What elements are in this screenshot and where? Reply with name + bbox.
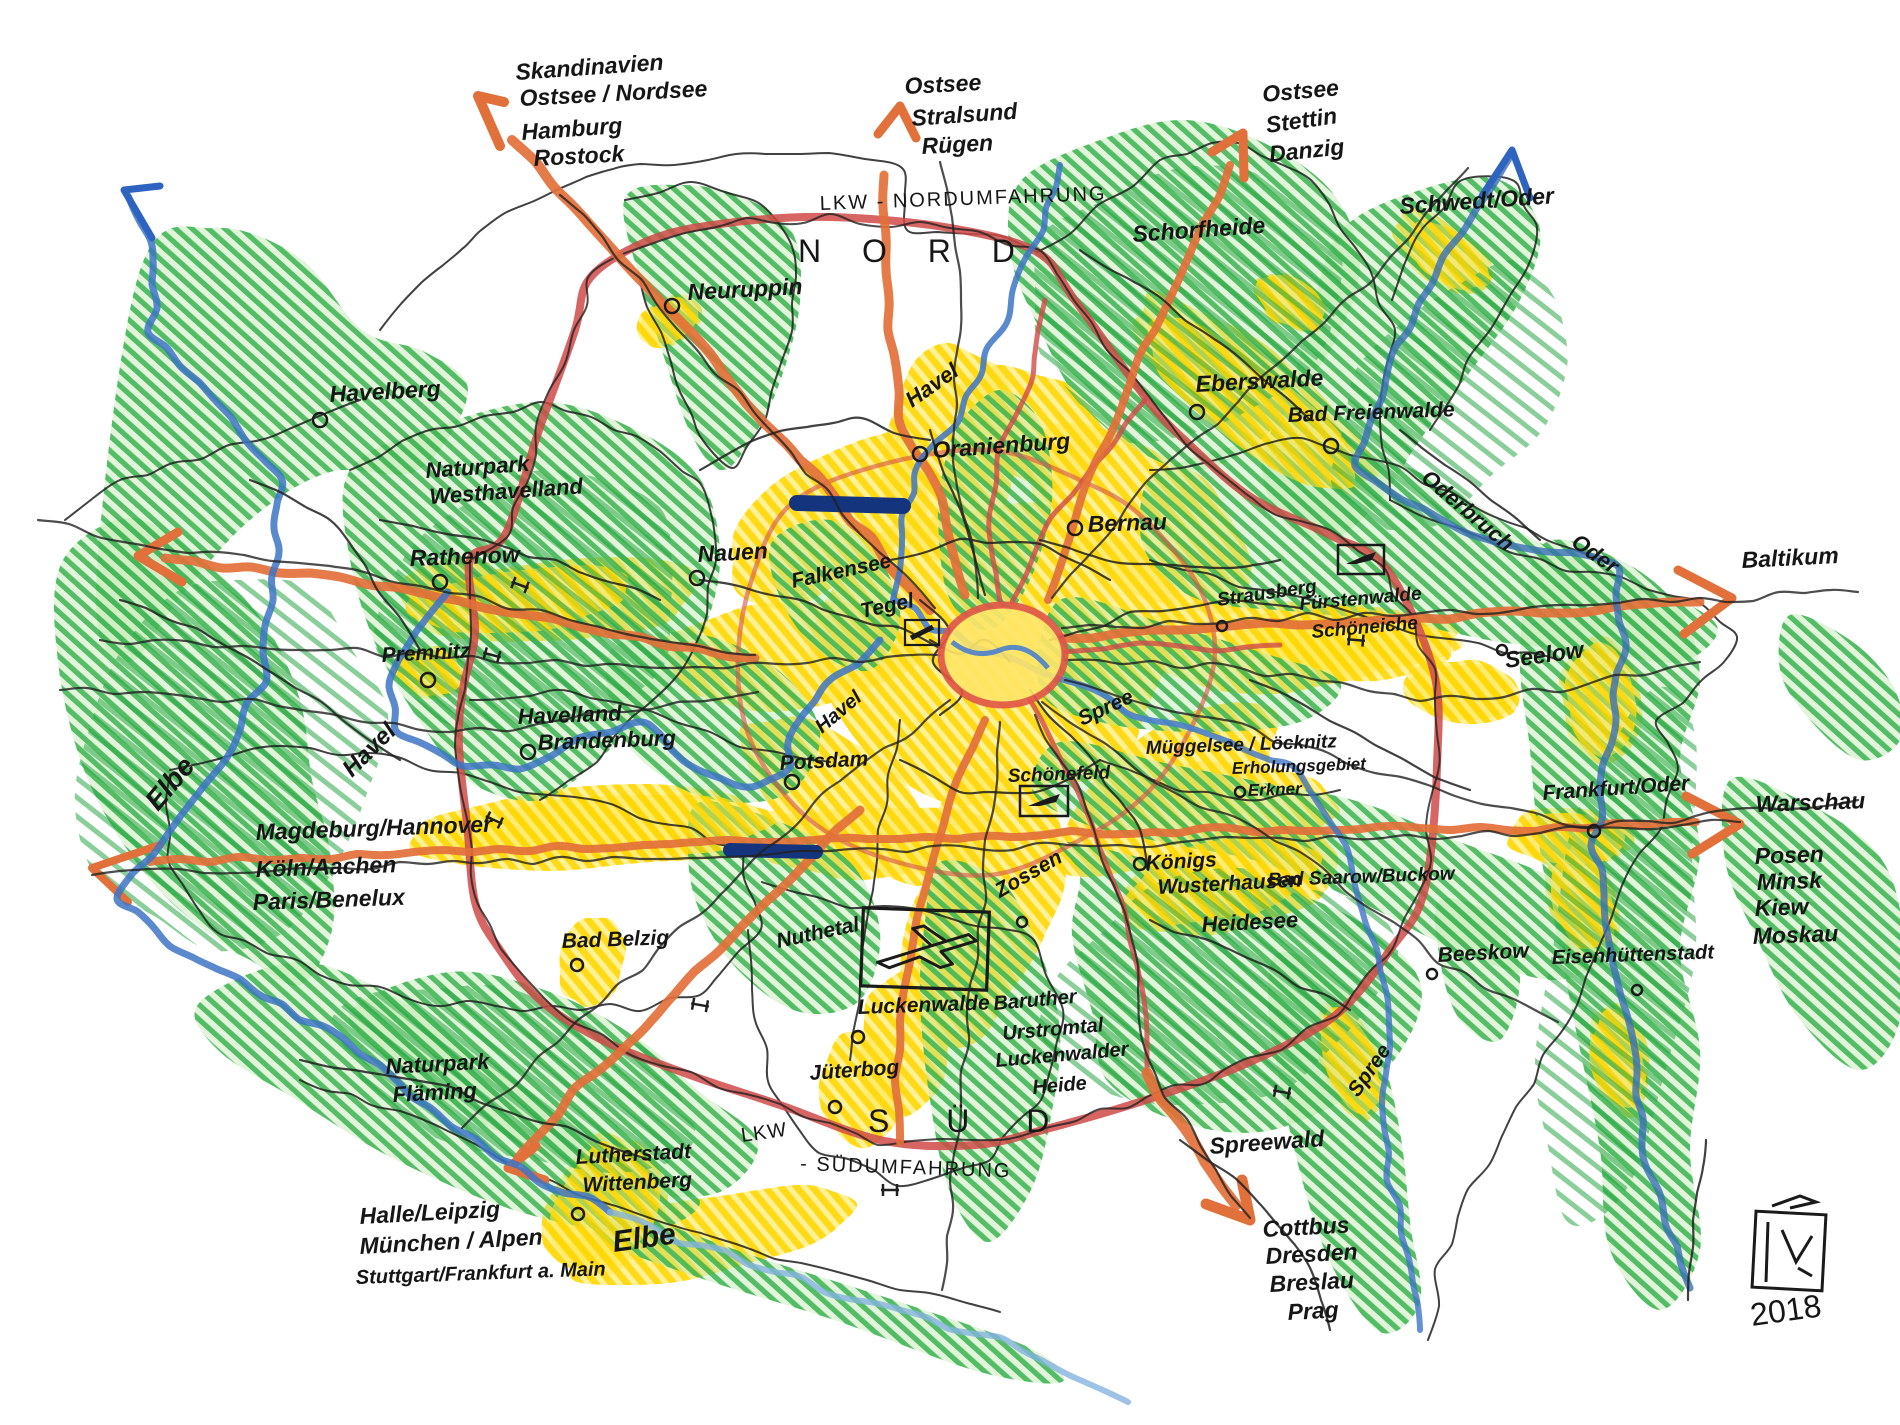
svg-text:Beeskow: Beeskow [1437,939,1531,967]
svg-text:Heidesee: Heidesee [1201,907,1299,937]
svg-text:Posen: Posen [1754,841,1824,869]
svg-text:Bad Belzig: Bad Belzig [561,926,669,953]
svg-text:Luckenwalde: Luckenwalde [857,991,990,1019]
svg-text:Erkner: Erkner [1247,779,1303,800]
svg-text:Havelland: Havelland [517,700,622,729]
svg-text:Potsdam: Potsdam [779,747,869,775]
svg-text:Prag: Prag [1287,1296,1339,1325]
svg-text:Moskau: Moskau [1752,920,1838,949]
svg-text:Königs: Königs [1145,848,1217,875]
svg-text:Nauen: Nauen [697,537,769,567]
svg-text:Dresden: Dresden [1265,1238,1358,1269]
svg-text:Rostock: Rostock [533,140,626,171]
svg-text:Fläming: Fläming [392,1078,478,1107]
svg-text:Rügen: Rügen [921,129,994,159]
svg-text:Minsk: Minsk [1756,867,1823,895]
svg-text:Kiew: Kiew [1754,893,1811,921]
svg-text:Schönefeld: Schönefeld [1007,762,1110,787]
svg-text:Breslau: Breslau [1269,1267,1355,1297]
svg-text:Brandenburg: Brandenburg [537,725,676,755]
svg-text:Rathenow: Rathenow [409,541,522,571]
svg-text:Bernau: Bernau [1087,508,1167,537]
svg-text:N O R D: N O R D [798,233,1031,269]
svg-text:Warschau: Warschau [1755,787,1865,817]
svg-text:Cottbus: Cottbus [1262,1211,1350,1242]
svg-text:Baltikum: Baltikum [1741,542,1839,573]
svg-text:Ostsee: Ostsee [904,69,982,99]
svg-text:Paris/Benelux: Paris/Benelux [252,884,406,915]
svg-text:S Ü D: S Ü D [868,1103,1073,1139]
svg-text:Köln/Aachen: Köln/Aachen [255,851,396,882]
svg-text:Premnitz: Premnitz [381,639,471,667]
